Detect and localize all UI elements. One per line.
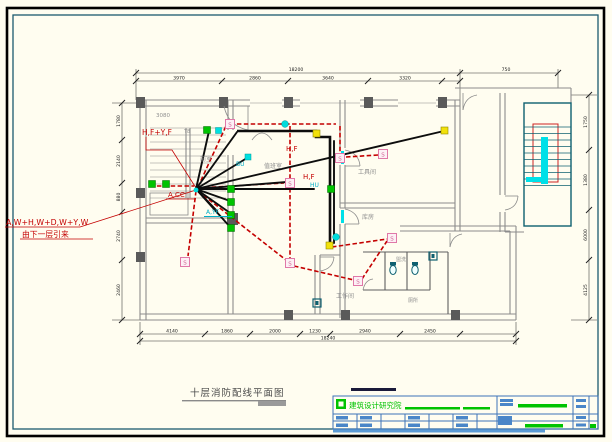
alarm-device-green xyxy=(328,186,335,193)
dim-bottom-total: 18240 xyxy=(321,336,336,342)
alarm-device-cyan xyxy=(245,154,251,160)
dim-top-right: 750 xyxy=(502,67,511,73)
dim-right-seg: 6000 xyxy=(583,229,589,241)
label-hf: H,F xyxy=(286,145,298,153)
smoke-detector: S xyxy=(381,153,385,159)
dim-right-seg: 4125 xyxy=(583,284,589,296)
dim-right-seg: 1750 xyxy=(583,116,589,128)
room-label: T8 xyxy=(183,129,190,135)
dim-left-seg: 2140 xyxy=(116,155,122,167)
alarm-device-cyan xyxy=(216,128,222,134)
alarm-device-green xyxy=(228,186,235,193)
smoke-detector: S xyxy=(338,157,342,163)
smoke-detector: S xyxy=(390,237,394,243)
dim-left-seg: 1780 xyxy=(116,115,122,127)
alarm-device-green xyxy=(228,199,235,206)
alarm-device-green xyxy=(204,127,211,134)
speaker-device-cyan xyxy=(282,121,289,128)
titleblock-bottom-bar xyxy=(333,430,545,433)
riser-hub xyxy=(194,188,199,193)
drawing-canvas: 18200 750 3970 2860 3640 3320 4140 1860 … xyxy=(0,0,612,442)
dim-left-seg: 2460 xyxy=(116,284,122,296)
speaker-device-cyan xyxy=(333,234,340,241)
label-acc: A,CC xyxy=(168,191,185,199)
stair-run-arrow xyxy=(541,137,548,184)
paper-background xyxy=(0,0,612,442)
dim-bottom-seg: 2450 xyxy=(424,329,436,335)
room-label: 前室 xyxy=(200,155,212,163)
dim-top-seg: 3320 xyxy=(399,76,411,82)
door-jamb-marker xyxy=(341,210,344,223)
label-bu: BU xyxy=(236,161,245,168)
room-label: 3080 xyxy=(156,113,170,119)
drawing-title: 十层消防配线平面图 xyxy=(190,387,285,399)
dim-top-seg: 2860 xyxy=(249,76,261,82)
dim-top-seg: 3640 xyxy=(322,76,334,82)
company-name: 建筑设计研究院 xyxy=(349,400,402,410)
dim-left-seg: 880 xyxy=(116,193,122,202)
dim-bottom-seg: 2000 xyxy=(269,329,281,335)
label-ayf: A,YF xyxy=(206,209,220,216)
label-hu: HU xyxy=(310,182,319,189)
smoke-detector: S xyxy=(183,261,187,267)
smoke-detector: S xyxy=(288,262,292,268)
smoke-detector: S xyxy=(228,123,232,129)
feeder-note-line1: A,W+H,W+D,W+Y,W xyxy=(6,218,89,227)
room-label: 库房 xyxy=(362,213,374,221)
alarm-device-green xyxy=(149,181,156,188)
dim-left-seg: 2740 xyxy=(116,230,122,242)
alarm-device-green xyxy=(163,181,170,188)
junction-yellow xyxy=(326,242,333,249)
smoke-detector: S xyxy=(288,182,292,188)
room-label: 厕所 xyxy=(408,297,418,304)
room-label: 盥洗 xyxy=(396,256,406,263)
smoke-detector: S xyxy=(356,280,360,286)
alarm-device-green xyxy=(228,225,235,232)
dim-top-seg: 3970 xyxy=(173,76,185,82)
dim-right-seg: 1380 xyxy=(583,174,589,186)
junction-yellow xyxy=(441,127,448,134)
room-label: 值班室 xyxy=(264,162,282,170)
dim-bottom-seg: 1230 xyxy=(309,329,321,335)
dim-bottom-seg: 4140 xyxy=(166,329,178,335)
alarm-device-green xyxy=(228,212,235,219)
room-label: 工具间 xyxy=(358,168,376,176)
junction-yellow xyxy=(313,130,320,137)
label-hf: H,F xyxy=(303,173,315,181)
label-riser: H,F+Y,F xyxy=(142,128,172,137)
cad-sheet: 18200 750 3970 2860 3640 3320 4140 1860 … xyxy=(0,0,612,442)
dim-bottom-seg: 2940 xyxy=(359,329,371,335)
dim-bottom-seg: 1860 xyxy=(221,329,233,335)
feeder-note-line2: 由下一层引来 xyxy=(22,229,69,239)
dim-top-total: 18200 xyxy=(289,67,304,73)
room-label: 工作间 xyxy=(336,292,354,300)
